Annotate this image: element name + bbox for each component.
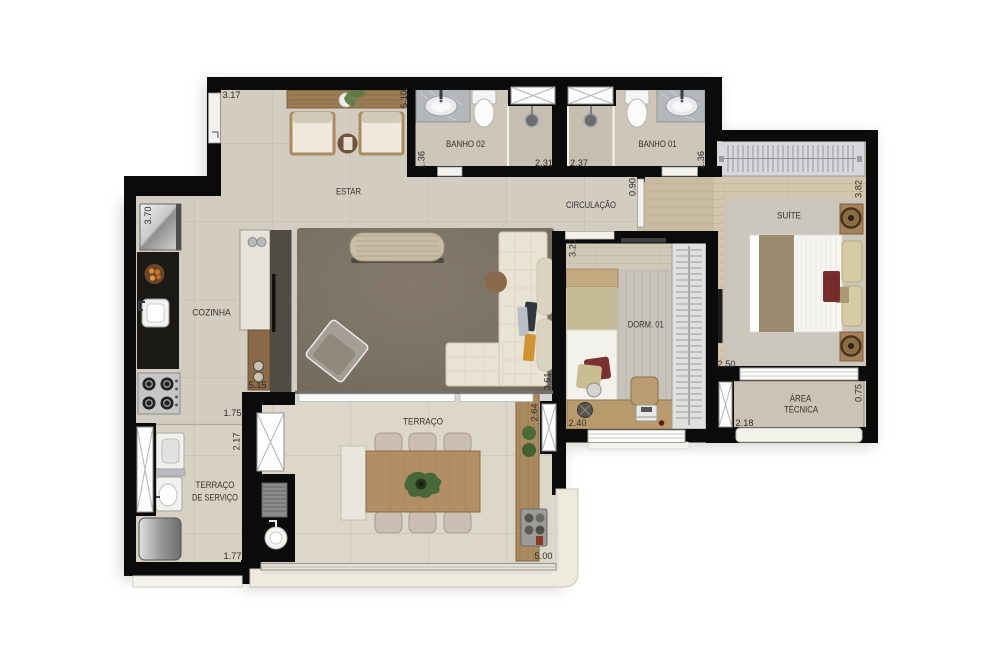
- svg-text:2.50: 2.50: [718, 359, 736, 369]
- svg-text:SUÍTE: SUÍTE: [777, 211, 801, 222]
- svg-text:3.61: 3.61: [543, 373, 553, 391]
- svg-text:2.31: 2.31: [535, 158, 553, 168]
- svg-text:1.75: 1.75: [224, 408, 242, 418]
- svg-text:BANHO 01: BANHO 01: [639, 139, 677, 150]
- svg-text:2.37: 2.37: [570, 158, 588, 168]
- svg-text:0.90: 0.90: [628, 178, 638, 196]
- svg-text:TERRAÇO: TERRAÇO: [403, 417, 443, 428]
- svg-text:5.00: 5.00: [535, 551, 553, 561]
- svg-text:TÉCNICA: TÉCNICA: [784, 405, 819, 416]
- svg-text:ESTAR: ESTAR: [336, 187, 361, 198]
- svg-text:1.77: 1.77: [224, 551, 242, 561]
- svg-text:2.64: 2.64: [530, 404, 540, 422]
- svg-text:1.36: 1.36: [417, 151, 427, 169]
- svg-text:3.82: 3.82: [854, 180, 864, 198]
- svg-text:2.18: 2.18: [736, 418, 754, 428]
- svg-text:3.20: 3.20: [568, 239, 578, 257]
- svg-text:ÁREA: ÁREA: [790, 394, 812, 405]
- svg-text:3.70: 3.70: [143, 207, 153, 225]
- svg-text:DE SERVIÇO: DE SERVIÇO: [192, 493, 238, 504]
- svg-text:5.10: 5.10: [399, 90, 409, 108]
- svg-text:BANHO 02: BANHO 02: [446, 139, 485, 150]
- svg-text:3.17: 3.17: [223, 90, 241, 100]
- svg-text:0.75: 0.75: [854, 384, 864, 402]
- svg-text:5.15: 5.15: [249, 380, 267, 390]
- svg-text:CIRCULAÇÃO: CIRCULAÇÃO: [566, 200, 616, 211]
- svg-text:2.40: 2.40: [569, 418, 587, 428]
- svg-text:2.17: 2.17: [232, 433, 242, 451]
- svg-text:TERRAÇO: TERRAÇO: [196, 480, 235, 491]
- svg-text:DORM. 01: DORM. 01: [628, 320, 664, 331]
- svg-text:COZINHA: COZINHA: [192, 308, 231, 319]
- svg-text:1.36: 1.36: [696, 151, 706, 169]
